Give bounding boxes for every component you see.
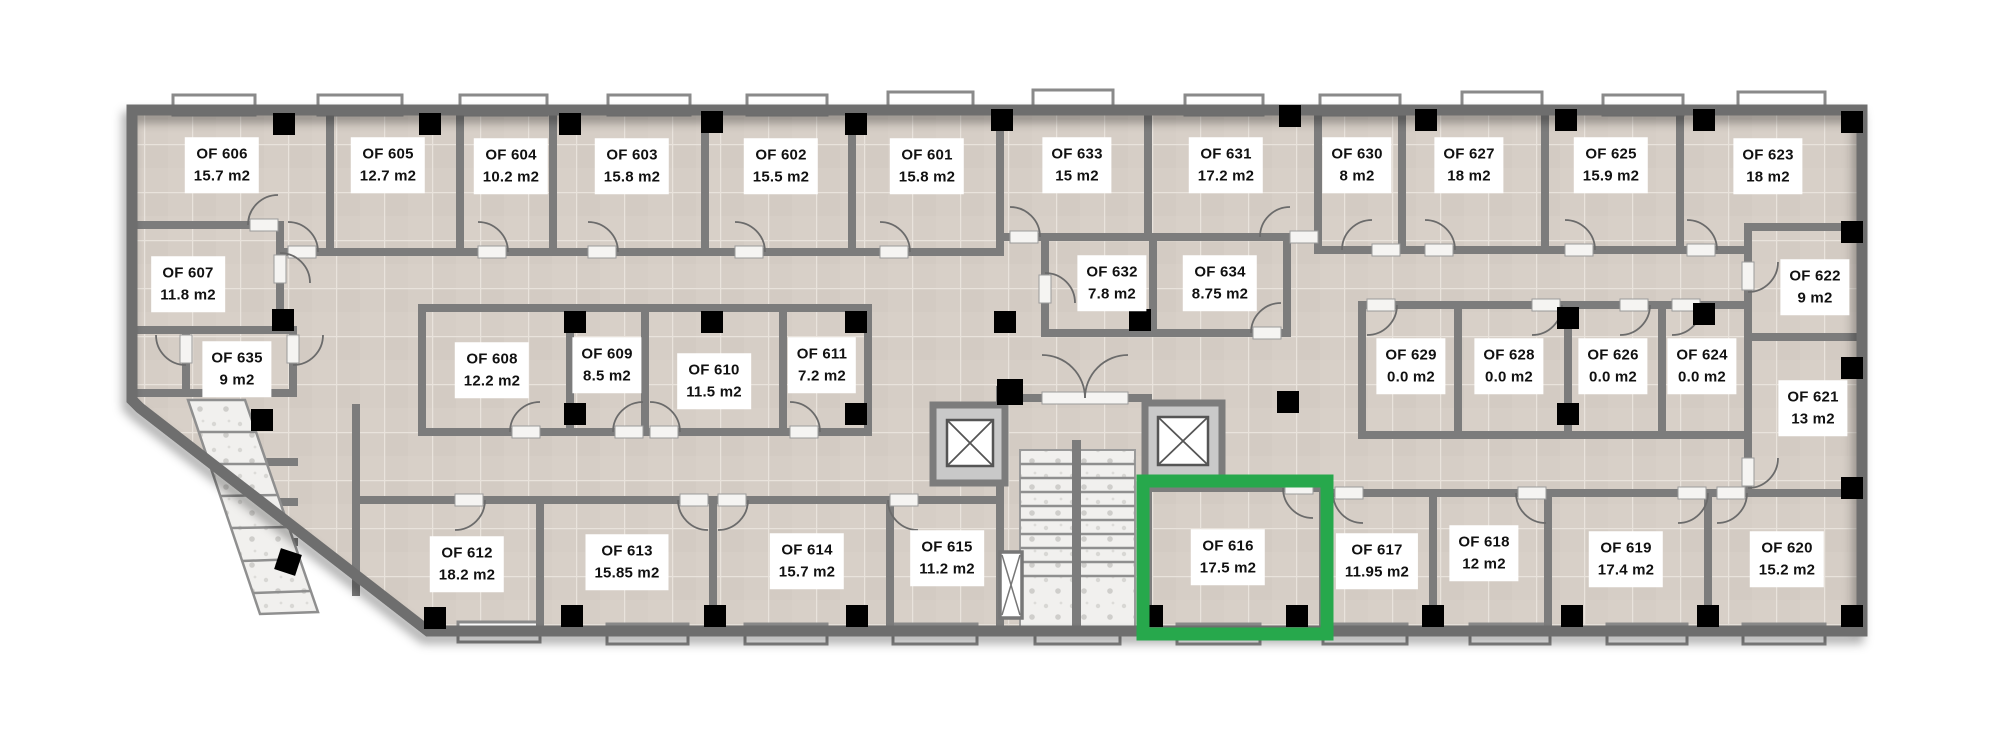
- room-of613-label[interactable]: OF 61315.85 m2: [586, 534, 669, 590]
- elevator-icon: [933, 405, 1005, 483]
- main-staircase-icon: [1020, 440, 1135, 630]
- room-of615-label[interactable]: OF 61511.2 m2: [910, 530, 984, 586]
- room-of605-label[interactable]: OF 60512.7 m2: [351, 137, 425, 193]
- room-of617-label[interactable]: OF 61711.95 m2: [1336, 533, 1418, 589]
- room-of601-label[interactable]: OF 60115.8 m2: [890, 138, 964, 194]
- room-of612-label[interactable]: OF 61218.2 m2: [430, 536, 504, 592]
- room-of622-label[interactable]: OF 6229 m2: [1780, 259, 1849, 315]
- room-of633-label[interactable]: OF 63315 m2: [1042, 137, 1111, 193]
- room-of635-label[interactable]: OF 6359 m2: [202, 341, 271, 397]
- elevator-icon: [1145, 403, 1222, 481]
- room-of616-label[interactable]: OF 61617.5 m2: [1191, 529, 1265, 585]
- room-of603-label[interactable]: OF 60315.8 m2: [595, 138, 669, 194]
- room-of621-label[interactable]: OF 62113 m2: [1778, 380, 1847, 436]
- room-of619-label[interactable]: OF 61917.4 m2: [1589, 531, 1663, 587]
- room-of624-label[interactable]: OF 6240.0 m2: [1667, 338, 1736, 394]
- room-of611-label[interactable]: OF 6117.2 m2: [788, 337, 856, 393]
- room-of618-label[interactable]: OF 61812 m2: [1449, 525, 1518, 581]
- room-of608-label[interactable]: OF 60812.2 m2: [455, 342, 529, 398]
- room-of607-label[interactable]: OF 60711.8 m2: [151, 256, 225, 312]
- room-of625-label[interactable]: OF 62515.9 m2: [1574, 137, 1648, 193]
- room-of634-label[interactable]: OF 6348.75 m2: [1183, 255, 1257, 311]
- room-of604-label[interactable]: OF 60410.2 m2: [474, 138, 548, 194]
- room-of631-label[interactable]: OF 63117.2 m2: [1189, 137, 1263, 193]
- room-of602-label[interactable]: OF 60215.5 m2: [744, 138, 818, 194]
- room-of629-label[interactable]: OF 6290.0 m2: [1376, 338, 1445, 394]
- room-of610-label[interactable]: OF 61011.5 m2: [677, 353, 751, 409]
- room-of632-label[interactable]: OF 6327.8 m2: [1077, 255, 1146, 311]
- room-of620-label[interactable]: OF 62015.2 m2: [1750, 531, 1824, 587]
- room-of630-label[interactable]: OF 6308 m2: [1322, 137, 1391, 193]
- room-of614-label[interactable]: OF 61415.7 m2: [770, 533, 844, 589]
- room-of609-label[interactable]: OF 6098.5 m2: [572, 337, 641, 393]
- room-of606-label[interactable]: OF 60615.7 m2: [185, 137, 259, 193]
- floor-plan-canvas: OF 60115.8 m2 OF 60215.5 m2 OF 60315.8 m…: [0, 0, 2000, 744]
- room-of626-label[interactable]: OF 6260.0 m2: [1578, 338, 1647, 394]
- room-of628-label[interactable]: OF 6280.0 m2: [1474, 338, 1543, 394]
- room-of623-label[interactable]: OF 62318 m2: [1733, 138, 1802, 194]
- small-shaft-icon: [1000, 552, 1022, 618]
- room-of627-label[interactable]: OF 62718 m2: [1434, 137, 1503, 193]
